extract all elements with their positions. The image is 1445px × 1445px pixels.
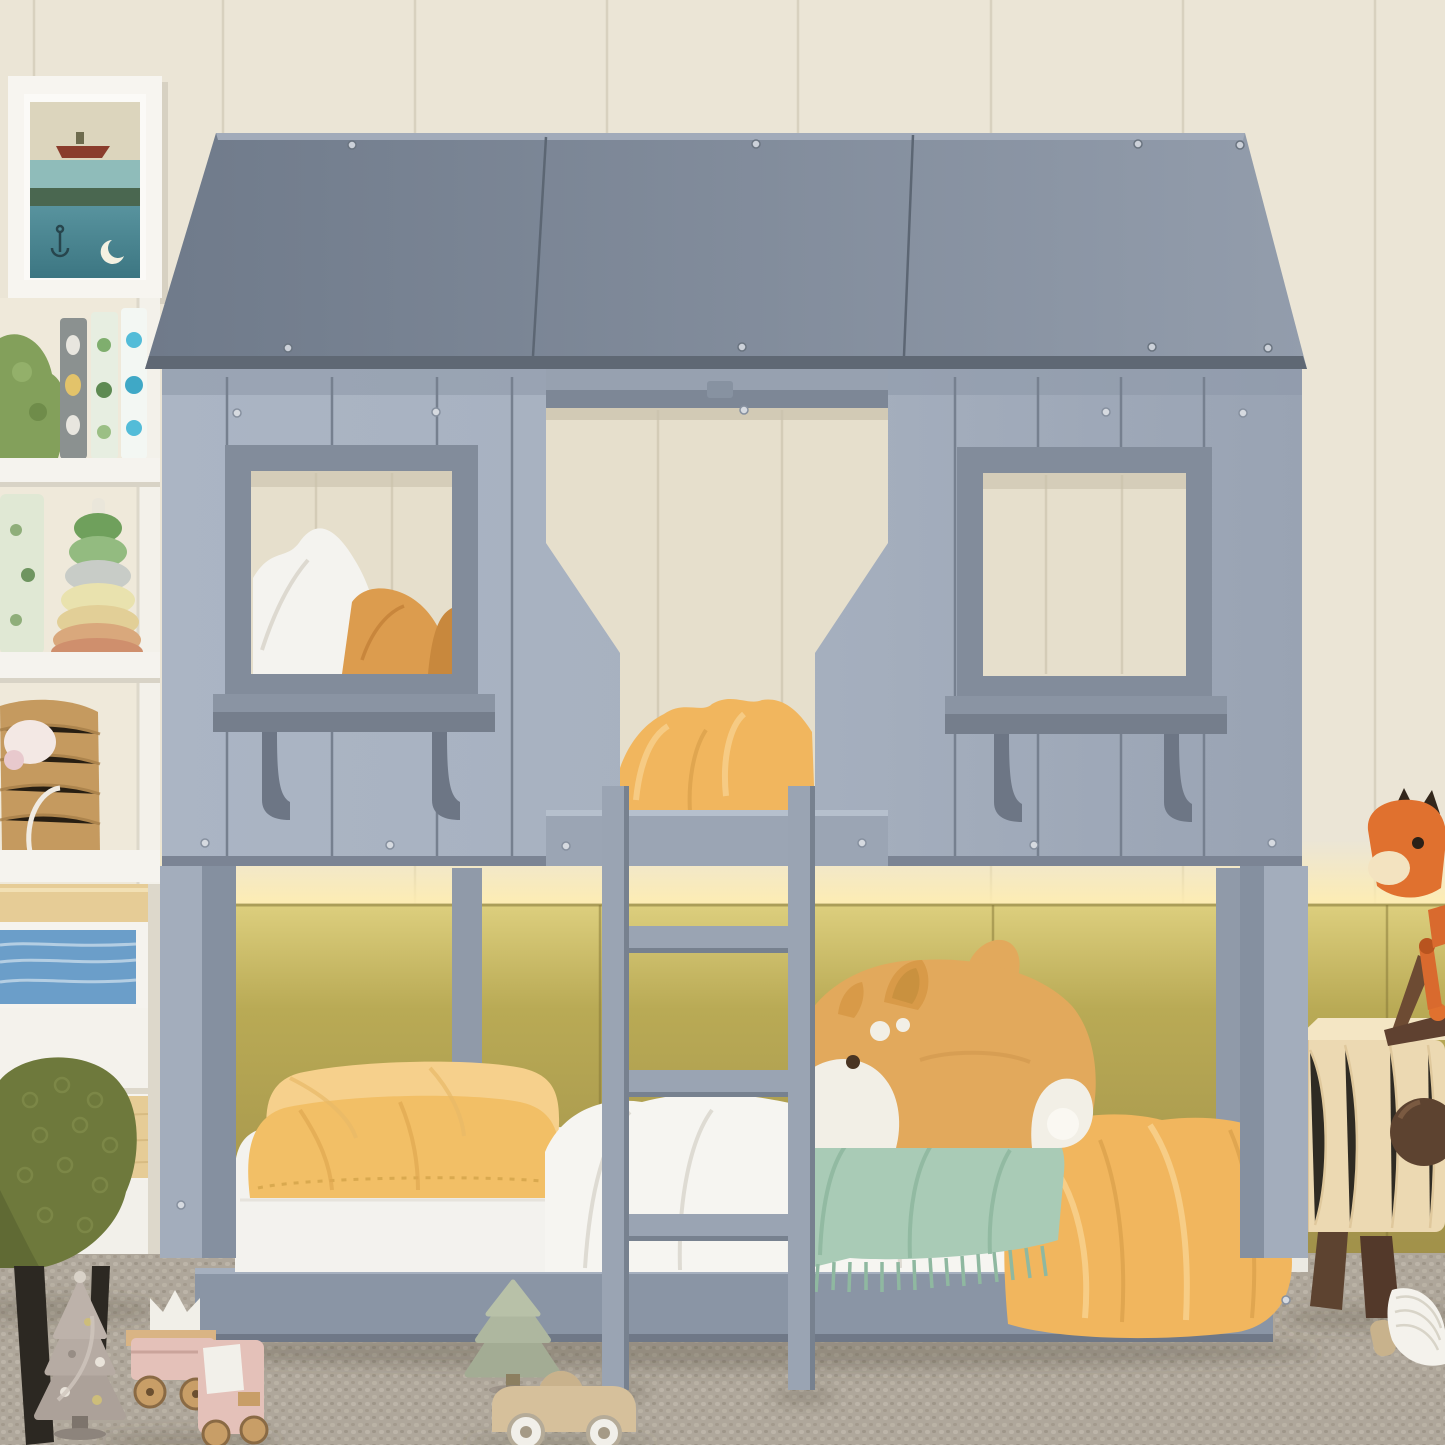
lamp-eye [1412,837,1424,849]
lamp-lens [1368,851,1410,885]
door-latch [707,381,733,398]
house-bunk-bed [145,133,1308,1404]
shelf-board [0,652,160,680]
yellow-pillows [248,1062,561,1198]
ocean-art-panel [0,930,136,1004]
picture-frame [8,76,168,304]
sea-artwork [30,102,140,278]
tree-star [74,1271,86,1283]
right-post [1264,866,1308,1258]
shelf-board [0,458,160,484]
rear-post-left [452,868,482,1092]
scene [0,0,1445,1445]
plush-eye [846,1055,860,1069]
roof [145,133,1307,369]
picture-books [60,308,147,459]
boat [56,146,110,158]
woven-basket [0,700,100,852]
rear-post-right [1216,868,1240,1142]
left-post [160,866,202,1258]
shelf-board [0,850,160,882]
upper-bunk-rail [546,810,888,866]
train-wheel [241,1417,267,1443]
kids-room-photo [0,0,1445,1445]
train-wheel [203,1421,229,1445]
bookcase [0,298,160,922]
